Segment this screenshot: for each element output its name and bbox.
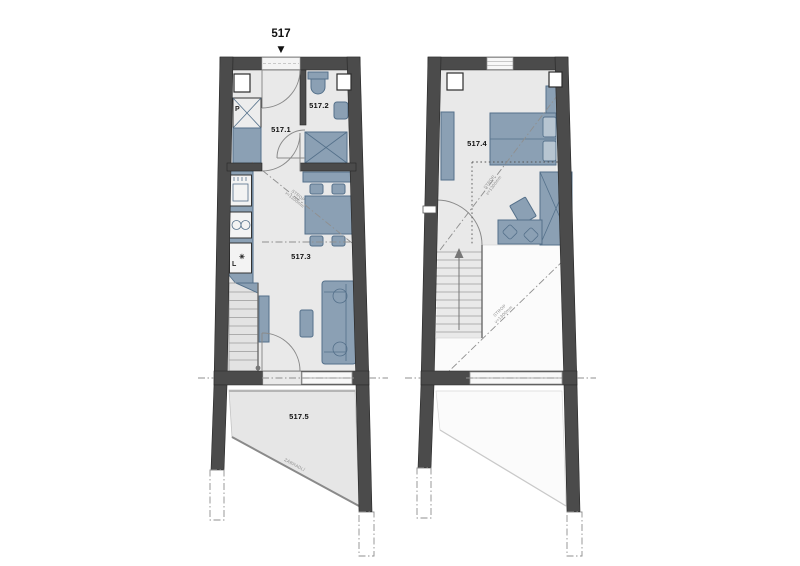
sideboard [303,172,356,182]
wall-stub-left [418,385,434,468]
coffee-table [300,310,313,337]
unit-callout: 517 ▼ [271,28,290,55]
terrace-floor [229,390,359,506]
washer-label: P [235,106,240,113]
tv-bench [259,296,269,342]
roof-window [549,72,562,87]
room-label-bathroom: 517.2 [309,101,329,110]
wall-bathroom-bottom [300,163,356,171]
fridge-label: L [232,261,237,268]
sofa [322,281,356,364]
wall-niche [423,206,436,213]
chair [310,236,323,246]
wall-bathroom [300,70,306,125]
double-bed [490,113,556,165]
column-outline [417,468,431,518]
column-outline [210,470,224,520]
chair [332,184,345,194]
roof-window [234,74,250,92]
wall-stub-right [356,385,372,512]
washbasin [334,102,348,119]
room-label-terrace: 517.5 [289,412,309,421]
wall-hall-divider [227,163,262,171]
washing-machine: P [233,98,261,128]
wall-stub-right [564,385,580,512]
newel-post [256,366,261,371]
stove [230,175,252,206]
roof-window [447,73,463,90]
wall-stub-left [211,385,227,470]
pillow [543,117,556,137]
column-outline [567,512,582,556]
fridge-symbol: ✳ [239,253,245,261]
fridge: L ✳ [230,243,252,273]
right-floor-plan: STROP v=1300mm STROP v=1300mm [405,57,596,556]
kitchen-sink [230,212,252,238]
unit-number: 517 [271,28,290,40]
room-label-bedroom: 517.4 [467,139,487,148]
chair [332,236,345,246]
pillow [543,141,556,161]
terrace-void [436,391,566,506]
room-label-living: 517.3 [291,252,311,261]
left-floor-plan: ZÁBRADLÍ 517.5 L ✳ [198,57,388,556]
hall-closet [233,128,261,163]
entry-arrow-icon: ▼ [278,45,285,55]
room-label-hall: 517.1 [271,125,291,134]
floor-plan-canvas: ZÁBRADLÍ 517.5 L ✳ [0,0,800,566]
entry-doorway [262,58,300,70]
column-outline [359,512,374,556]
dining-table [305,196,355,234]
staircase-lower [229,283,260,371]
roof-window [337,74,351,90]
floor-plan-drawing: ZÁBRADLÍ 517.5 L ✳ [0,0,800,566]
shower [305,132,347,163]
top-window [487,58,513,70]
chair [310,184,323,194]
dresser [441,112,454,180]
